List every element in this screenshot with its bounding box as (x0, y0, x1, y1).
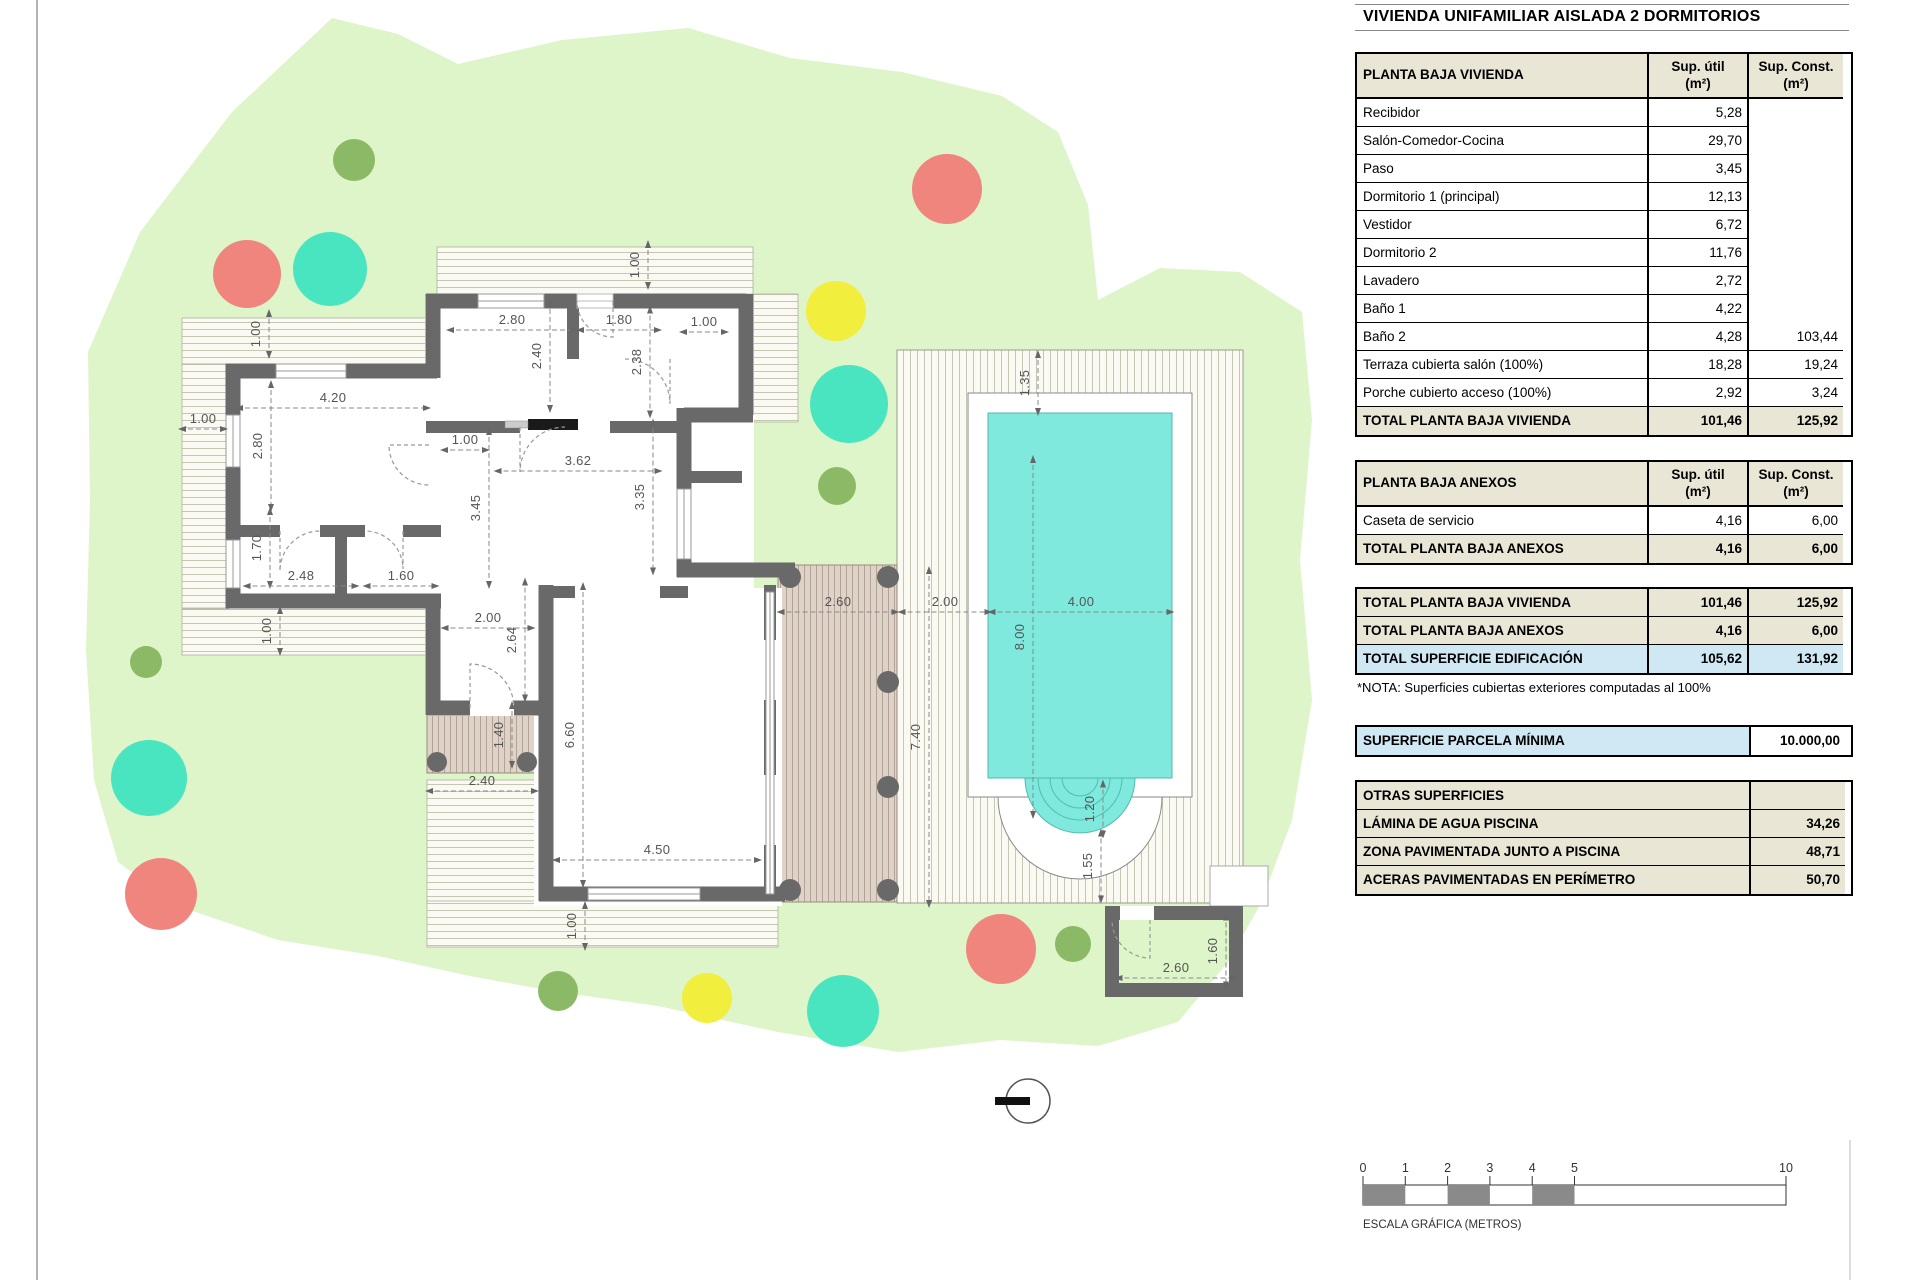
summary-row: TOTAL SUPERFICIE EDIFICACIÓN105,62131,92 (1357, 645, 1851, 673)
room-name-cell: Dormitorio 2 (1357, 239, 1649, 267)
sup-const-cell: 125,92 (1749, 407, 1843, 435)
table-header-sup-util: Sup. útil (m²) (1649, 462, 1749, 507)
summary-row: TOTAL PLANTA BAJA ANEXOS4,166,00 (1357, 617, 1851, 645)
sup-util-cell: 12,13 (1649, 183, 1749, 211)
sup-util-cell: 29,70 (1649, 127, 1749, 155)
sup-const-cell (1749, 127, 1843, 155)
sup-const-cell (1749, 211, 1843, 239)
dimension-label: 1.40 (491, 722, 506, 749)
table-row: Caseta de servicio4,166,00 (1357, 507, 1851, 535)
dimension-label: 6.60 (562, 722, 577, 749)
sup-util-cell: 2,92 (1649, 379, 1749, 407)
dimension-label: 3.62 (565, 453, 592, 468)
sup-const-cell: 103,44 (1749, 323, 1843, 351)
otras-header-row: OTRAS SUPERFICIES (1357, 782, 1851, 810)
sup-const-cell: 6,00 (1749, 535, 1843, 563)
room-name-cell: Dormitorio 1 (principal) (1357, 183, 1649, 211)
sup-const-cell: 19,24 (1749, 351, 1843, 379)
tree (538, 971, 578, 1011)
tree (806, 281, 866, 341)
dimension-label: 2.64 (504, 627, 519, 654)
table-header-row: PLANTA BAJA ANEXOSSup. útil (m²)Sup. Con… (1357, 462, 1851, 507)
table-row: Recibidor5,28 (1357, 99, 1851, 127)
table-row: Paso3,45 (1357, 155, 1851, 183)
dimension-label: 2.40 (469, 773, 496, 788)
dimension-label: 1.60 (1205, 938, 1220, 965)
scale-tick-label: 10 (1779, 1161, 1793, 1175)
sup-util-cell: 4,16 (1649, 507, 1749, 535)
table-row: Baño 24,28103,44 (1357, 323, 1851, 351)
otras-row: LÁMINA DE AGUA PISCINA34,26 (1357, 810, 1851, 838)
sup-const-cell (1749, 183, 1843, 211)
dimension-label: 1.00 (190, 411, 217, 426)
table-header-sup-const: Sup. Const. (m²) (1749, 462, 1843, 507)
room-name-cell: Porche cubierto acceso (100%) (1357, 379, 1649, 407)
dimension-label: 3.45 (468, 495, 483, 522)
dimension-label: 1.00 (452, 432, 479, 447)
otras-row: ZONA PAVIMENTADA JUNTO A PISCINA48,71 (1357, 838, 1851, 866)
sup-util-cell: 4,22 (1649, 295, 1749, 323)
parcela-label-cell: SUPERFICIE PARCELA MÍNIMA (1357, 727, 1751, 755)
scale-tick-label: 2 (1444, 1161, 1451, 1175)
sup-const-cell (1749, 295, 1843, 323)
sup-const-cell (1749, 239, 1843, 267)
dimension-label: 1.35 (1017, 370, 1032, 397)
table-header-name: PLANTA BAJA ANEXOS (1357, 462, 1649, 507)
dimension-label: 1.20 (1082, 796, 1097, 823)
sup-util-cell: 4,28 (1649, 323, 1749, 351)
table-totales: TOTAL PLANTA BAJA VIVIENDA101,46125,92TO… (1355, 587, 1853, 675)
dimension-label: 2.60 (1163, 960, 1190, 975)
sup-util-cell: 4,16 (1649, 535, 1749, 563)
scale-bar-caption: ESCALA GRÁFICA (METROS) (1363, 1218, 1522, 1231)
table-row: Vestidor6,72 (1357, 211, 1851, 239)
kitchen-counter-side (505, 421, 528, 428)
dimension-label: 1.60 (388, 568, 415, 583)
table-otras-superficies: OTRAS SUPERFICIESLÁMINA DE AGUA PISCINA3… (1355, 780, 1853, 896)
table-header-sup-util: Sup. útil (m²) (1649, 54, 1749, 99)
sup-util-cell: 4,16 (1649, 617, 1749, 645)
tree (111, 740, 187, 816)
room-name-cell: Baño 1 (1357, 295, 1649, 323)
tree (818, 467, 856, 505)
room-name-cell: Salón-Comedor-Cocina (1357, 127, 1649, 155)
scale-tick-label: 5 (1571, 1161, 1578, 1175)
table-planta-baja-vivienda: PLANTA BAJA VIVIENDASup. útil (m²)Sup. C… (1355, 52, 1853, 437)
dimension-label: 2.40 (529, 343, 544, 370)
room-name-cell: Lavadero (1357, 267, 1649, 295)
dimension-label: 3.35 (632, 484, 647, 511)
dimension-label: 2.38 (629, 349, 644, 376)
dimension-label: 1.00 (259, 618, 274, 645)
room-name-cell: Recibidor (1357, 99, 1649, 127)
scale-tick-label: 1 (1402, 1161, 1409, 1175)
dimension-label: 1.00 (691, 314, 718, 329)
scale-bar: 01234510 (1360, 1161, 1793, 1205)
dimension-label: 4.00 (1068, 594, 1095, 609)
dimension-label: 4.50 (644, 842, 671, 857)
dimension-label: 1.00 (564, 913, 579, 940)
table-row: Dormitorio 211,76 (1357, 239, 1851, 267)
sup-util-cell: 18,28 (1649, 351, 1749, 379)
otras-value-cell: 34,26 (1751, 810, 1845, 838)
dimension-label: 2.00 (932, 594, 959, 609)
sup-const-cell (1749, 267, 1843, 295)
tree (1055, 926, 1091, 962)
dimension-label: 1.80 (606, 312, 633, 327)
otras-value-cell: 50,70 (1751, 866, 1845, 894)
sup-const-cell: 6,00 (1749, 617, 1843, 645)
room-name-cell: Vestidor (1357, 211, 1649, 239)
scale-tick-label: 3 (1486, 1161, 1493, 1175)
dimension-label: 1.00 (248, 321, 263, 348)
total-row: TOTAL PLANTA BAJA ANEXOS4,166,00 (1357, 535, 1851, 563)
dimension-label: 2.80 (250, 433, 265, 460)
table-row: Baño 14,22 (1357, 295, 1851, 323)
otras-header-cell: OTRAS SUPERFICIES (1357, 782, 1751, 810)
sup-const-cell: 125,92 (1749, 589, 1843, 617)
table-row: Dormitorio 1 (principal)12,13 (1357, 183, 1851, 211)
table-planta-baja-anexos: PLANTA BAJA ANEXOSSup. útil (m²)Sup. Con… (1355, 460, 1853, 565)
dimension-label: 2.80 (499, 312, 526, 327)
dimension-label: 1.55 (1080, 853, 1095, 880)
sup-const-cell (1749, 99, 1843, 127)
otras-label-cell: ZONA PAVIMENTADA JUNTO A PISCINA (1357, 838, 1751, 866)
sup-util-cell: 11,76 (1649, 239, 1749, 267)
room-name-cell: TOTAL PLANTA BAJA ANEXOS (1357, 617, 1649, 645)
sup-util-cell: 6,72 (1649, 211, 1749, 239)
dimension-label: 4.20 (320, 390, 347, 405)
dimension-label: 2.48 (288, 568, 315, 583)
compass-icon (995, 1079, 1050, 1123)
tree (130, 646, 162, 678)
nota-text: *NOTA: Superficies cubiertas exteriores … (1357, 680, 1711, 695)
swimming-pool (968, 393, 1192, 879)
tree (966, 914, 1036, 984)
room-name-cell: Caseta de servicio (1357, 507, 1649, 535)
table-row: Terraza cubierta salón (100%)18,2819,24 (1357, 351, 1851, 379)
tree (125, 858, 197, 930)
sup-util-cell: 2,72 (1649, 267, 1749, 295)
table-header-row: PLANTA BAJA VIVIENDASup. útil (m²)Sup. C… (1357, 54, 1851, 99)
otras-header-empty-cell (1751, 782, 1845, 810)
tree (912, 154, 982, 224)
sup-const-cell: 3,24 (1749, 379, 1843, 407)
table-row: Lavadero2,72 (1357, 267, 1851, 295)
room-name-cell: TOTAL PLANTA BAJA VIVIENDA (1357, 589, 1649, 617)
kitchen-counter (528, 419, 578, 430)
sup-util-cell: 101,46 (1649, 589, 1749, 617)
page-title: VIVIENDA UNIFAMILIAR AISLADA 2 DORMITORI… (1355, 4, 1849, 31)
sup-util-cell: 101,46 (1649, 407, 1749, 435)
sup-util-cell: 5,28 (1649, 99, 1749, 127)
tree (333, 139, 375, 181)
table-header-sup-const: Sup. Const. (m²) (1749, 54, 1843, 99)
summary-row: TOTAL PLANTA BAJA VIVIENDA101,46125,92 (1357, 589, 1851, 617)
room-name-cell: TOTAL PLANTA BAJA VIVIENDA (1357, 407, 1649, 435)
sup-util-cell: 105,62 (1649, 645, 1749, 673)
sup-const-cell: 131,92 (1749, 645, 1843, 673)
otras-value-cell: 48,71 (1751, 838, 1845, 866)
room-name-cell: Paso (1357, 155, 1649, 183)
parcela-value-cell: 10.000,00 (1751, 727, 1845, 755)
dimension-label: 2.00 (475, 610, 502, 625)
tree (807, 975, 879, 1047)
room-name-cell: TOTAL PLANTA BAJA ANEXOS (1357, 535, 1649, 563)
tree (213, 240, 281, 308)
sup-const-cell (1749, 155, 1843, 183)
tree (682, 973, 732, 1023)
dimension-label: 2.60 (825, 594, 852, 609)
caseta-access-pad (1210, 866, 1268, 906)
tree (810, 365, 888, 443)
sup-const-cell: 6,00 (1749, 507, 1843, 535)
table-header-name: PLANTA BAJA VIVIENDA (1357, 54, 1649, 99)
table-row: Salón-Comedor-Cocina29,70 (1357, 127, 1851, 155)
room-name-cell: TOTAL SUPERFICIE EDIFICACIÓN (1357, 645, 1649, 673)
table-parcela-minima: SUPERFICIE PARCELA MÍNIMA10.000,00 (1355, 725, 1853, 757)
dimension-label: 1.70 (249, 535, 264, 562)
dimension-label: 1.00 (627, 252, 642, 279)
sup-util-cell: 3,45 (1649, 155, 1749, 183)
room-name-cell: Baño 2 (1357, 323, 1649, 351)
otras-label-cell: LÁMINA DE AGUA PISCINA (1357, 810, 1751, 838)
dimension-label: 8.00 (1012, 624, 1027, 651)
room-name-cell: Terraza cubierta salón (100%) (1357, 351, 1649, 379)
parcela-row: SUPERFICIE PARCELA MÍNIMA10.000,00 (1357, 727, 1851, 755)
otras-label-cell: ACERAS PAVIMENTADAS EN PERÍMETRO (1357, 866, 1751, 894)
covered-terrace (778, 565, 897, 902)
total-row: TOTAL PLANTA BAJA VIVIENDA101,46125,92 (1357, 407, 1851, 435)
scale-tick-label: 4 (1529, 1161, 1536, 1175)
table-row: Porche cubierto acceso (100%)2,923,24 (1357, 379, 1851, 407)
scale-tick-label: 0 (1360, 1161, 1367, 1175)
dimension-label: 7.40 (908, 724, 923, 751)
tree (293, 232, 367, 306)
otras-row: ACERAS PAVIMENTADAS EN PERÍMETRO50,70 (1357, 866, 1851, 894)
